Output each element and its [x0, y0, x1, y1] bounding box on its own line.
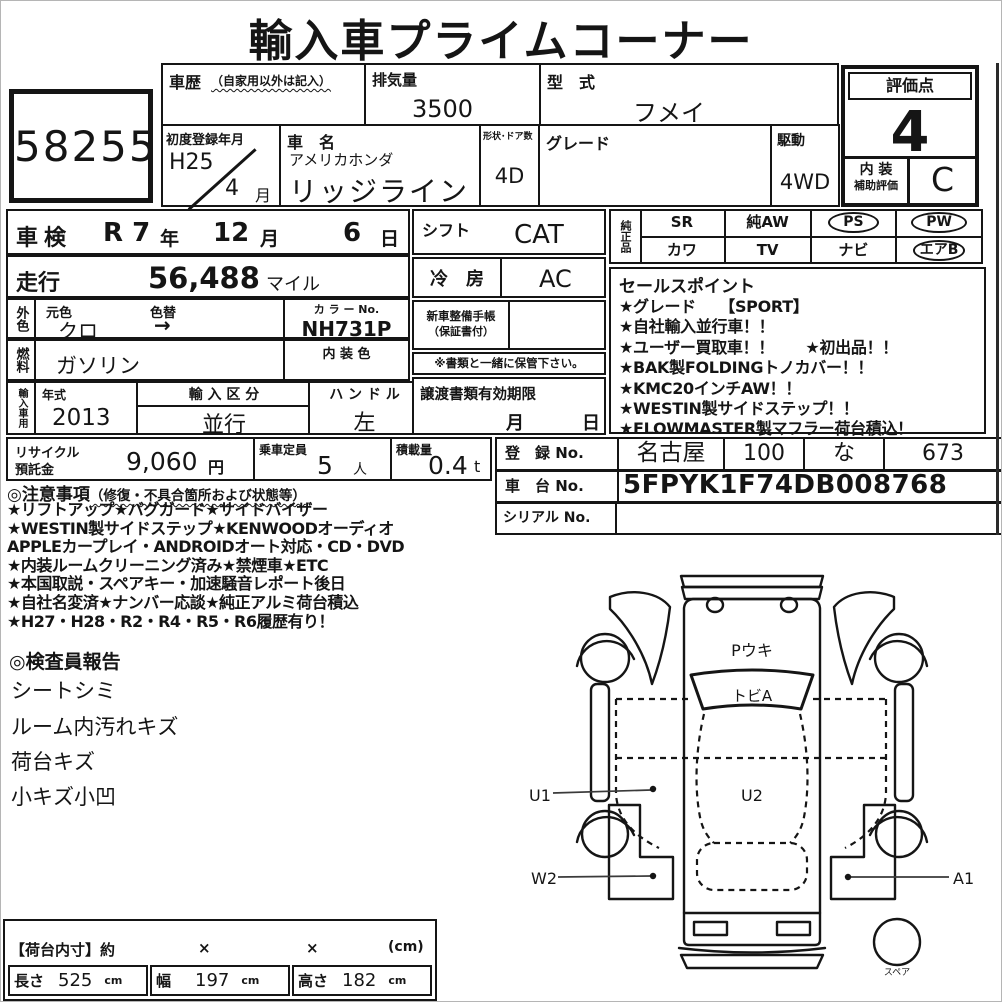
bed-length-label: 長さ	[14, 970, 44, 991]
lot-number-box: 58255	[9, 89, 153, 203]
transfer-month-unit: 月	[506, 409, 524, 435]
bed-length-cell: 長さ 525 cm	[8, 965, 148, 996]
car-model: リッジライン	[289, 170, 469, 210]
sales-point-line: ★グレード 【SPORT】	[619, 297, 984, 317]
rating-box: 評価点 4 内 装 補助評価 C	[841, 65, 979, 207]
model-code-value: フメイ	[541, 93, 797, 128]
sales-point-line: ★KMC20インチAW！！	[619, 379, 984, 399]
equipment-tag: 純正品	[620, 220, 631, 253]
bed-times-1: ×	[198, 939, 211, 957]
rear-bumper	[681, 955, 823, 968]
fuel-row: 燃料 ガソリン 内 装 色	[6, 339, 410, 381]
lot-number: 58255	[14, 122, 148, 171]
equipment-grid: 純正品 SR 純AW PS PW カワ TV ナビ エアB	[609, 209, 983, 264]
interior-color-cell: 内 装 色	[283, 341, 408, 379]
handle-label: ハ ン ド ル	[310, 383, 419, 405]
note-line: ★自社名変済★ナンバー応談★純正アルミ荷台積込	[7, 594, 404, 613]
equip-kawa-label: カワ	[667, 241, 697, 259]
ac-value: AC	[539, 265, 572, 293]
equipment-tag-cell: 純正品	[611, 211, 642, 262]
note-line: APPLEカープレイ・ANDROIDオート対応・CD・DVD	[7, 538, 404, 557]
load-cell: 積載量 0.4 t	[390, 439, 490, 479]
sales-point-line: ★自社輸入並行車！！	[619, 317, 984, 337]
u1-marker-dot	[650, 786, 656, 792]
interior-label-bottom: 補助評価	[845, 179, 907, 193]
serial-value	[617, 504, 1001, 533]
import-row: 輸入車用 年式 2013 輸 入 区 分 並行 ハ ン ド ル 左	[6, 381, 421, 435]
inspector-line: 荷台キズ	[11, 746, 95, 776]
model-code-cell: 型 式 フメイ	[539, 63, 839, 126]
transfer-label: 譲渡書類有効期限	[420, 383, 536, 404]
page-edge-line	[996, 63, 999, 535]
pw-oval: PW	[911, 212, 967, 233]
auction-sheet: 輸入車プライムコーナー 58255 車歴 （自家用以外は記入） 排気量 3500…	[0, 0, 1002, 1002]
year-value: 2013	[52, 405, 111, 431]
a1-damage-code: A1	[953, 869, 974, 888]
ac-label: 冷 房	[414, 259, 500, 296]
bed-height-label: 高さ	[298, 970, 328, 991]
car-name-cell: 車 名 アメリカホンダ リッジライン	[279, 124, 481, 207]
bed-wall-left	[697, 714, 714, 843]
recycle-unit: 円	[208, 454, 224, 478]
import-class-cell: 輸 入 区 分 並行	[136, 383, 310, 433]
import-class-value: 並行	[138, 407, 310, 439]
taillight-right	[777, 922, 810, 935]
handle-value: 左	[310, 405, 419, 437]
load-value: 0.4	[428, 451, 468, 480]
vehicle-damage-diagram: Pウキ トビA U1 U2 W2 A1 スペア	[501, 556, 1002, 1002]
color-no-cell: カ ラ ー No. NH731P	[283, 300, 408, 337]
bed-times-2: ×	[306, 939, 319, 957]
registration-number: 673	[885, 439, 1001, 469]
fuel-value: ガソリン	[56, 350, 140, 380]
maintenance-label-1: 新車整備手帳	[414, 308, 508, 324]
recycle-label-2: 預託金	[15, 459, 54, 478]
history-cell: 車歴 （自家用以外は記入）	[161, 63, 366, 126]
maintenance-label-2: （保証書付）	[414, 324, 508, 340]
displacement-cell: 排気量 3500	[364, 63, 541, 126]
exterior-tag-cell: 外色	[8, 300, 36, 337]
shaken-row: 車検 R 7 年 12 月 6 日	[6, 209, 410, 255]
displacement-value: 3500	[366, 95, 519, 123]
interior-label-top: 内 装	[845, 162, 907, 179]
bed-width-cell: 幅 197 cm	[150, 965, 290, 996]
drive-cell: 駆動 4WD	[770, 124, 840, 207]
equip-tv-label: TV	[757, 241, 779, 259]
windshield-damage-code: トビA	[732, 687, 773, 705]
sales-point-line: ★WESTIN製サイドステップ！！	[619, 399, 984, 419]
sales-point-line: ★BAK製FOLDINGトノカバー！！	[619, 358, 984, 378]
front-bumper	[681, 576, 823, 587]
rear-window-dashed	[697, 843, 807, 890]
mileage-value: 56,488	[148, 261, 260, 295]
equip-airbag: エアB	[897, 238, 981, 263]
spare-label: スペア	[884, 968, 910, 978]
recycle-value: 9,060	[126, 447, 198, 476]
grade-cell: グレード	[538, 124, 772, 207]
sales-points-header: セールスポイント	[611, 269, 984, 297]
equip-sr-label: SR	[671, 213, 693, 231]
registration-class: 100	[725, 439, 805, 469]
bed-wall-right	[790, 714, 807, 843]
shift-value: CAT	[514, 220, 564, 250]
w2-leader-line	[558, 876, 651, 877]
handle-cell: ハ ン ド ル 左	[308, 383, 419, 433]
capacity-value: 5	[317, 451, 333, 480]
shaken-day-unit: 日	[380, 224, 399, 251]
history-label: 車歴	[169, 69, 201, 93]
displacement-label: 排気量	[372, 69, 417, 90]
equip-pw: PW	[897, 211, 981, 236]
body-doors-value: 4D	[481, 164, 538, 188]
spare-tire	[874, 919, 920, 965]
load-unit: t	[474, 457, 480, 476]
ac-cell: 冷 房 AC	[412, 257, 606, 298]
shaken-month: 12	[213, 218, 249, 248]
notes-lines: ★リフトアップ★バグガード★サイドバイザー ★WESTIN製サイドステップ★KE…	[7, 501, 404, 631]
mileage-unit: マイル	[266, 270, 320, 296]
bed-dashed-right	[845, 699, 886, 848]
note-line: ★リフトアップ★バグガード★サイドバイザー	[7, 501, 404, 520]
bed-unit-note: (cm)	[388, 939, 424, 955]
note-line: ★WESTIN製サイドステップ★KENWOODオーディオ	[7, 520, 404, 539]
ps-oval: PS	[828, 212, 878, 233]
color-no-label: カ ラ ー No.	[285, 300, 408, 317]
bed-length-unit: cm	[104, 974, 122, 987]
bed-width-label: 幅	[156, 970, 171, 991]
color-no-value: NH731P	[285, 317, 408, 341]
serial-row: シリアル No.	[495, 502, 1002, 535]
airbag-oval: エアB	[913, 240, 966, 261]
change-color-value: →	[154, 313, 171, 337]
inspector-line: 小キズ小凹	[11, 781, 116, 811]
chassis-value: 5FPYK1F74DB008768	[619, 472, 1001, 501]
bed-header: 【荷台内寸】約	[10, 939, 115, 960]
history-note: （自家用以外は記入）	[211, 72, 331, 89]
equip-navi: ナビ	[812, 238, 898, 263]
hood-damage-code: Pウキ	[731, 641, 773, 660]
u1-leader-line	[553, 790, 651, 793]
registration-area: 名古屋	[619, 439, 725, 469]
registration-row: 登 録 No. 名古屋 100 な 673	[495, 437, 1002, 471]
bed-height-cell: 高さ 182 cm	[292, 965, 432, 996]
note-line: ★H27・H28・R2・R4・R5・R6履歴有り！	[7, 613, 404, 632]
first-registration-label: 初度登録年月	[166, 129, 244, 148]
transfer-cell: 譲渡書類有効期限 月 日	[412, 377, 606, 435]
keep-note-cell: ※書類と一緒に保管下さい。	[412, 352, 606, 375]
car-maker: アメリカホンダ	[289, 149, 393, 170]
equip-tv: TV	[726, 238, 812, 263]
mileage-row: 走行 56,488 マイル	[6, 255, 410, 298]
equip-aw-label: 純AW	[746, 213, 788, 231]
inspector-line: ルーム内汚れキズ	[11, 711, 178, 741]
transfer-day-unit: 日	[582, 409, 600, 435]
registration-kana: な	[805, 439, 885, 469]
rating-score: 4	[845, 100, 975, 164]
shaken-label: 車検	[16, 220, 72, 252]
first-registration-era: H25	[169, 150, 214, 175]
maintenance-cell: 新車整備手帳 （保証書付）	[412, 300, 606, 350]
equip-navi-label: ナビ	[838, 241, 868, 259]
import-class-label: 輸 入 区 分	[138, 383, 310, 407]
mileage-label: 走行	[16, 265, 60, 297]
first-registration-cell: 初度登録年月 H25 4 月	[161, 124, 281, 207]
front-bumper-band	[682, 587, 822, 599]
serial-label: シリアル No.	[497, 504, 617, 533]
interior-grade: C	[910, 159, 975, 203]
chassis-row: 車 台 No. 5FPYK1F74DB008768	[495, 470, 1002, 503]
registration-label: 登 録 No.	[497, 439, 619, 469]
interior-color-label: 内 装 色	[285, 341, 408, 362]
page-title: 輸入車プライムコーナー	[1, 5, 1001, 69]
fuel-tag-cell: 燃料	[8, 341, 36, 379]
capacity-cell: 乗車定員 5 人	[253, 439, 392, 479]
u1-damage-code: U1	[529, 786, 551, 805]
equip-aw: 純AW	[726, 211, 812, 236]
a1-marker-dot	[845, 874, 851, 880]
bed-dimensions-table: 【荷台内寸】約 × × (cm) 長さ 525 cm 幅 197 cm 高さ 1…	[3, 919, 437, 1001]
first-registration-month: 4	[225, 176, 239, 201]
taillight-left	[694, 922, 727, 935]
shaken-era: R 7	[103, 218, 150, 248]
model-code-label: 型 式	[547, 69, 595, 93]
u2-damage-code: U2	[741, 786, 763, 805]
w2-damage-code: W2	[531, 869, 557, 888]
rear-bumper-curve	[679, 948, 825, 953]
inspector-report-header: ◎検査員報告	[9, 647, 121, 674]
w2-marker-dot	[650, 873, 656, 879]
bed-height-unit: cm	[388, 974, 406, 987]
import-tag-cell: 輸入車用	[8, 383, 36, 433]
note-line: ★本国取説・スペアキー・加速騒音レポート後日	[7, 575, 404, 594]
shaken-year-unit: 年	[160, 224, 179, 251]
year-label: 年式	[42, 386, 66, 403]
shaken-day: 6	[343, 218, 361, 248]
note-line: ★内装ルームクリーニング済み★禁煙車★ETC	[7, 557, 404, 576]
equip-sr: SR	[640, 211, 726, 236]
shift-label: シフト	[422, 217, 470, 241]
grade-label: グレード	[546, 130, 610, 154]
recycle-row: リサイクル 預託金 9,060 円 乗車定員 5 人 積載量 0.4 t	[6, 437, 492, 481]
shaken-month-unit: 月	[260, 224, 279, 251]
shift-cell: シフト CAT	[412, 209, 606, 255]
body-doors-cell: 形状･ドア数 4D	[479, 124, 540, 207]
fuel-tag: 燃料	[15, 347, 28, 373]
capacity-label: 乗車定員	[259, 441, 307, 458]
sales-point-line: ★ユーザー買取車！！ ★初出品！！	[619, 338, 984, 358]
keep-note: ※書類と一緒に保管下さい。	[414, 354, 604, 373]
first-registration-month-unit: 月	[255, 182, 271, 206]
bed-dashed-left	[616, 699, 659, 848]
import-tag: 輸入車用	[16, 388, 26, 428]
exterior-tag: 外色	[15, 306, 28, 332]
left-sill	[591, 684, 609, 801]
bed-length-value: 525	[58, 970, 92, 991]
chassis-label: 車 台 No.	[497, 472, 619, 501]
drive-value: 4WD	[772, 170, 838, 194]
exterior-color-row: 外色 元色 色替 クロ → カ ラ ー No. NH731P	[6, 298, 410, 339]
inspector-line: シートシミ	[11, 675, 116, 705]
bed-width-unit: cm	[241, 974, 259, 987]
body-doors-label: 形状･ドア数	[483, 129, 533, 142]
bed-height-value: 182	[342, 970, 376, 991]
equip-ps: PS	[812, 211, 898, 236]
sales-points-box: セールスポイント ★グレード 【SPORT】 ★自社輸入並行車！！ ★ユーザー買…	[609, 267, 986, 434]
load-label: 積載量	[396, 441, 432, 458]
right-sill	[895, 684, 913, 801]
capacity-unit: 人	[353, 459, 367, 479]
rating-label: 評価点	[848, 72, 972, 100]
drive-label: 駆動	[777, 130, 805, 150]
bed-width-value: 197	[195, 970, 229, 991]
equip-kawa: カワ	[640, 238, 726, 263]
